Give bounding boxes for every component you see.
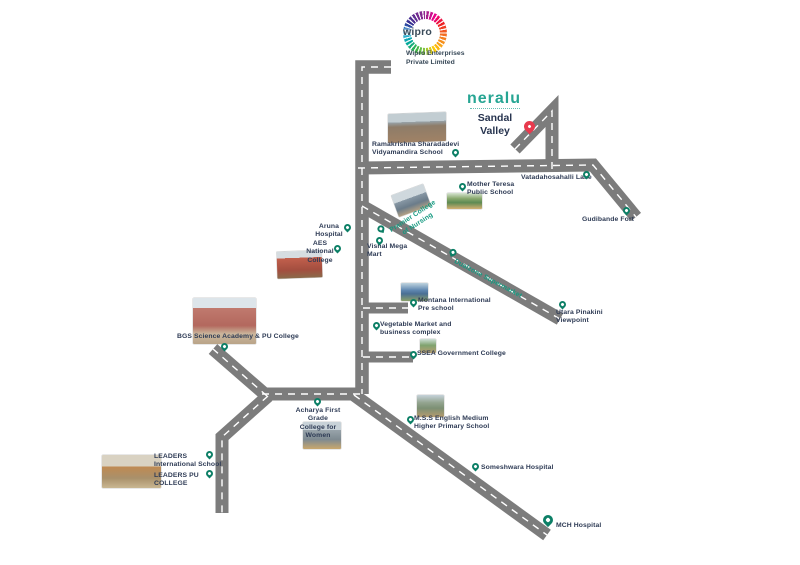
road-leaders bbox=[222, 396, 268, 513]
utara-viewpoint-label: Utara Pinakini Viewpoint bbox=[556, 309, 603, 326]
pin-icon bbox=[377, 225, 385, 233]
ramakrishna-school-label: Ramakrishna Sharadadevi Vidyamandira Sch… bbox=[372, 141, 459, 158]
road-bgs-spur bbox=[213, 349, 267, 396]
aes-college-label: AES National College bbox=[301, 240, 339, 265]
vatadahosahalli-lake-label: Vatadahosahalli Lake bbox=[521, 174, 592, 182]
leaders-school-photo bbox=[102, 455, 161, 488]
neralu-tagline bbox=[470, 108, 520, 109]
mother-teresa-label: Mother Teresa Public School bbox=[467, 181, 514, 198]
neralu-logo-text: neralu bbox=[467, 90, 521, 108]
mss-school-photo bbox=[417, 395, 444, 417]
montana-preschool-label: Montana International Pre school bbox=[418, 297, 491, 314]
aruna-hospital-label: Aruna Hospital bbox=[313, 223, 345, 240]
wipro-logo-text: wipro bbox=[403, 26, 432, 38]
ssea-college-label: SSEA Government College bbox=[417, 350, 506, 358]
location-map: wipro Wipro Enterprises Private Limited … bbox=[0, 0, 800, 565]
road-main-vertical bbox=[362, 67, 391, 394]
someshwara-hospital-label: Someshwara Hospital bbox=[481, 464, 554, 472]
vishal-mega-mart-label: Vishal Mega Mart bbox=[367, 243, 407, 260]
vegetable-market-label: Vegetable Market and business complex bbox=[380, 321, 452, 338]
gudibande-fort-label: Gudibande Fort bbox=[582, 216, 634, 224]
bgs-academy-label: BGS Science Academy & PU College bbox=[177, 333, 299, 341]
wipro-company-label: Wipro Enterprises Private Limited bbox=[406, 50, 464, 68]
acharya-college-label: Acharya First Grade College for Women bbox=[287, 407, 349, 441]
ramakrishna-school-photo bbox=[388, 112, 446, 143]
project-name: Sandal Valley bbox=[472, 112, 518, 137]
mss-school-label: M.S.S English Medium Higher Primary Scho… bbox=[414, 415, 489, 432]
mch-hospital-label: MCH Hospital bbox=[556, 522, 601, 530]
leaders-pu-label: LEADERS PU COLLEGE bbox=[154, 472, 199, 489]
